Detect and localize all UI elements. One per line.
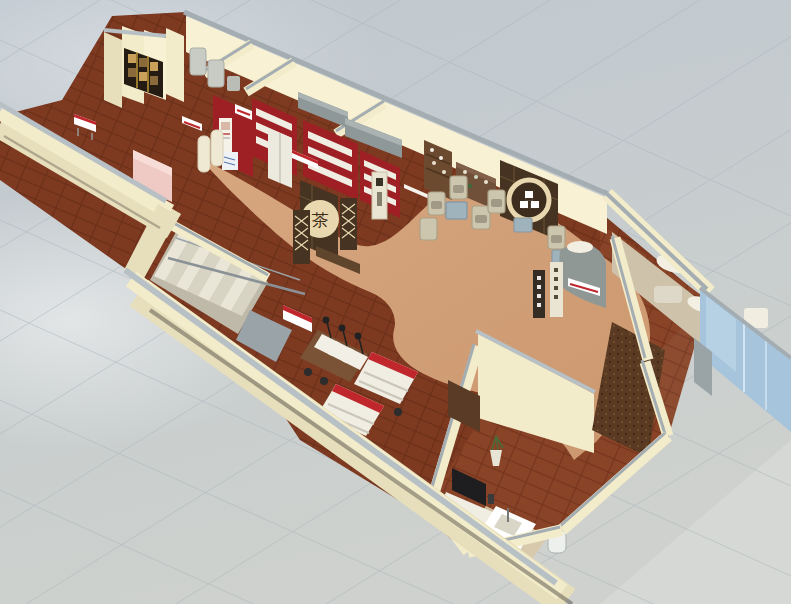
glass-table — [446, 202, 467, 219]
paper-roll-cylinders — [198, 130, 223, 172]
floorplan-render-scene: 茶 品 — [0, 0, 791, 604]
entrance-display-wall — [104, 26, 184, 108]
lattice-tower-left — [293, 210, 310, 264]
wicker-chair — [420, 218, 437, 240]
side-table — [227, 76, 240, 91]
left-screen-glyph: 茶 — [312, 210, 329, 230]
plant-pot — [468, 184, 473, 189]
floorplan-render: 茶 品 — [0, 0, 791, 604]
entrance-pillar — [166, 28, 184, 102]
info-board — [222, 152, 238, 170]
glass-table — [514, 218, 532, 232]
bolster-pillow — [567, 241, 593, 253]
scroll-banner-wall — [372, 172, 387, 219]
lattice-tower-right — [340, 198, 357, 250]
ottoman — [654, 286, 682, 303]
stool — [394, 408, 402, 416]
right-screen-glyph: 品 — [522, 194, 536, 210]
